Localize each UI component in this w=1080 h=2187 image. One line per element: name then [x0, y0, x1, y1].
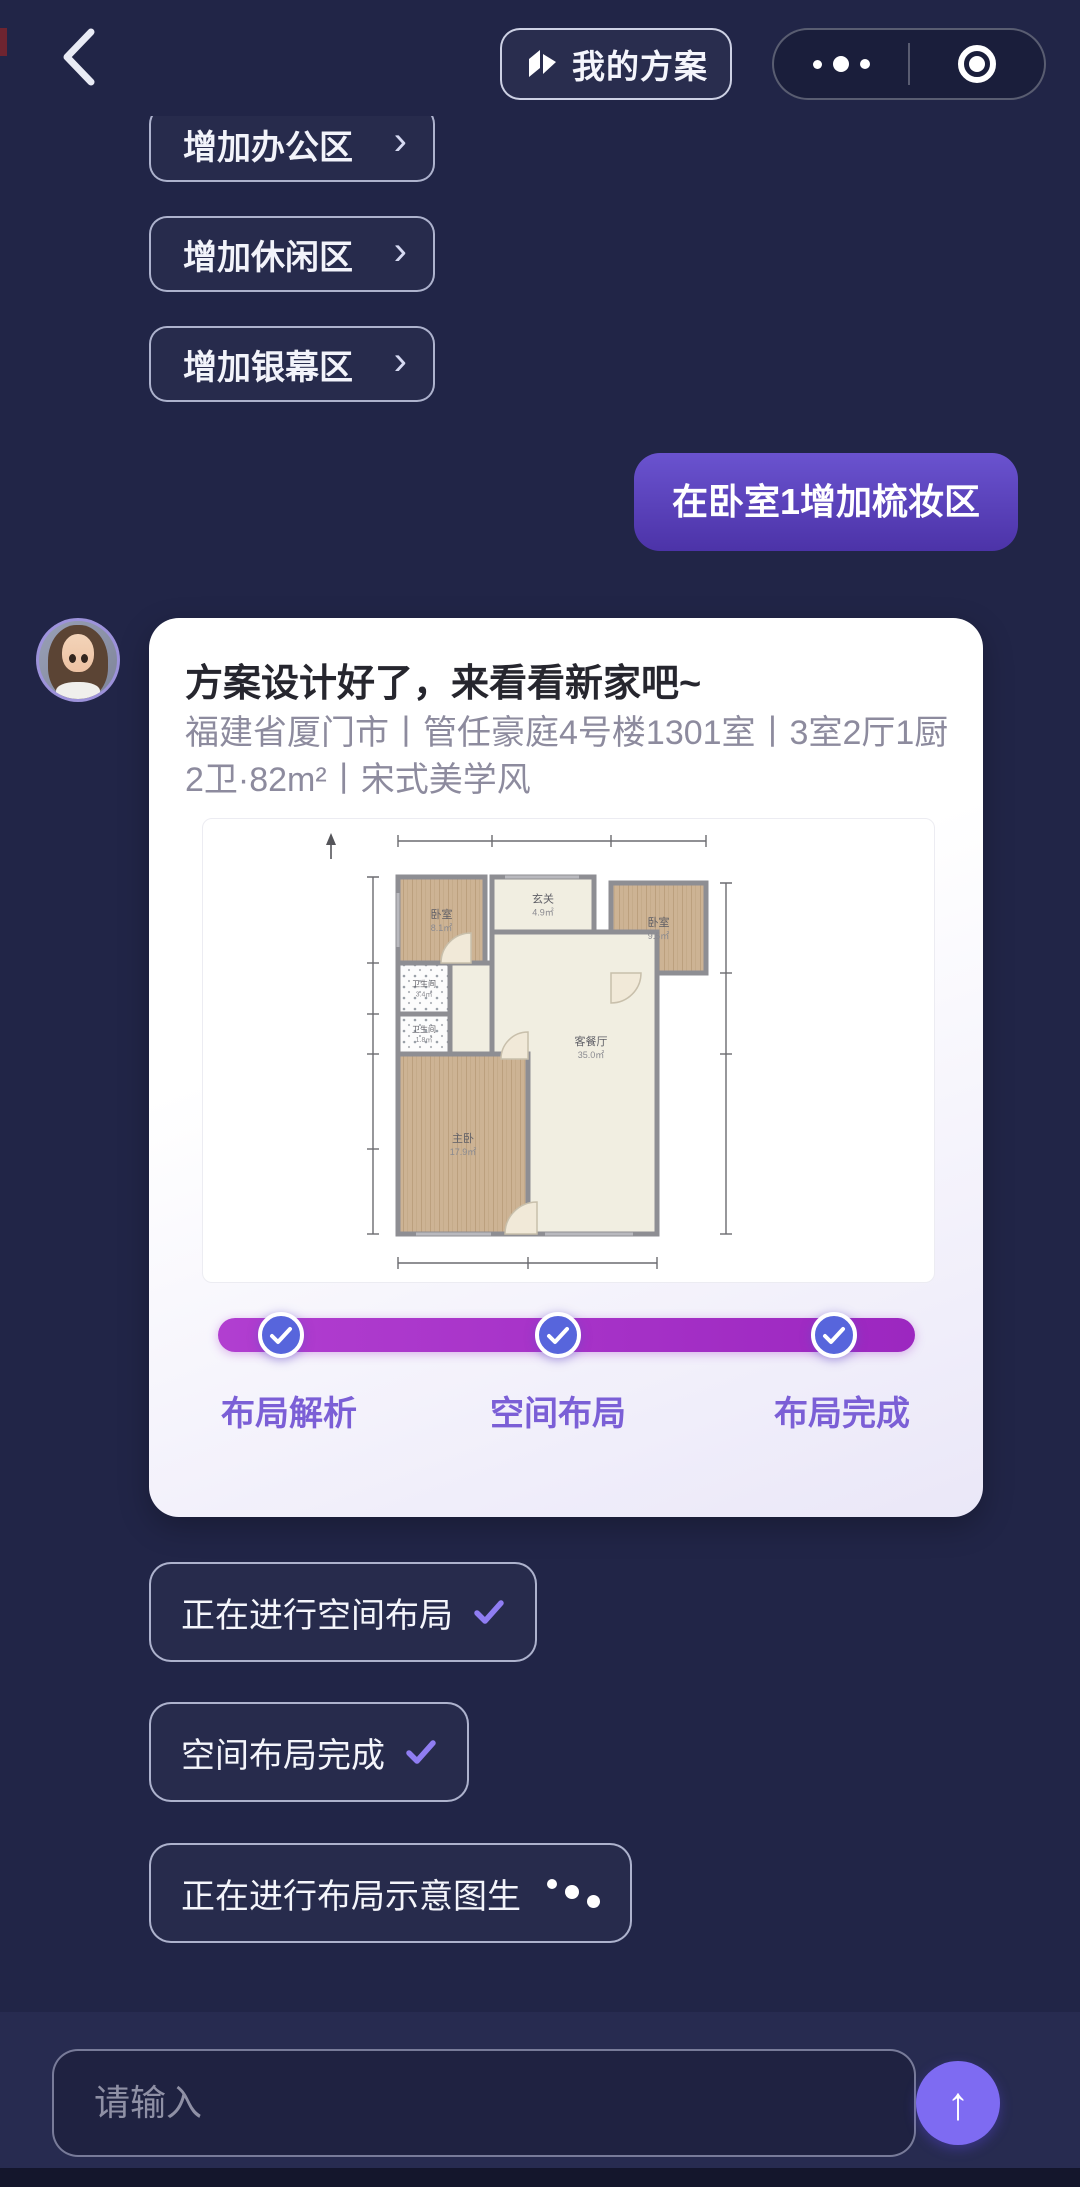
exit-circle-button[interactable] [910, 30, 1044, 98]
status-chip-spatial-layout-progress: 正在进行空间布局 [149, 1562, 537, 1662]
svg-text:玄关: 玄关 [532, 892, 554, 906]
progress-node-layout-complete [811, 1312, 857, 1358]
svg-text:35.0㎡: 35.0㎡ [578, 1050, 605, 1060]
svg-text:8.1㎡: 8.1㎡ [431, 923, 453, 933]
my-plans-label: 我的方案 [572, 40, 708, 88]
progress-bar [218, 1318, 915, 1352]
avatar-face [62, 634, 93, 671]
navbar: 我的方案 [0, 0, 1080, 110]
composer-bar: ↑ [0, 2012, 1080, 2187]
user-message-bubble: 在卧室1增加梳妆区 [634, 453, 1018, 551]
svg-text:卫生间: 卫生间 [412, 979, 436, 989]
room-bathroom-1 [398, 963, 450, 1014]
chevron-right-icon: › [394, 361, 407, 367]
app-screen: 我的方案 增加办公区 › 增加休闲区 › 增加银幕区 › 在卧室1增加梳妆区 [0, 0, 1080, 2187]
svg-text:4.9㎡: 4.9㎡ [532, 908, 554, 918]
progress-node-space-layout [535, 1312, 581, 1358]
plan-icon [524, 46, 560, 82]
suggestion-add-leisure-area[interactable]: 增加休闲区 › [149, 216, 435, 292]
screen-edge-artifact [0, 28, 7, 56]
loading-dots-icon [547, 1873, 600, 1913]
card-title: 方案设计好了，来看看新家吧~ [185, 652, 701, 707]
suggestion-label: 增加办公区 [183, 120, 353, 169]
chevron-right-icon: › [394, 251, 407, 257]
home-indicator-area [0, 2168, 1080, 2187]
svg-text:1.8㎡: 1.8㎡ [416, 1036, 433, 1044]
progress-labels: 布局解析空间布局布局完成 [218, 1386, 915, 1434]
suggestion-add-screen-area[interactable]: 增加银幕区 › [149, 326, 435, 402]
check-icon [473, 1598, 505, 1626]
progress-label-layout-complete: 布局完成 [774, 1386, 910, 1435]
back-icon[interactable] [55, 26, 101, 88]
progress-node-layout-analysis [258, 1312, 304, 1358]
room-corridor [450, 963, 492, 1054]
suggestion-label: 增加银幕区 [183, 340, 353, 389]
plan-card: 方案设计好了，来看看新家吧~ 福建省厦门市丨管任豪庭4号楼1301室丨3室2厅1… [149, 618, 983, 1517]
avatar-body [56, 682, 100, 701]
check-icon [405, 1738, 437, 1766]
chat-input-box [52, 2049, 916, 2157]
status-label: 正在进行空间布局 [181, 1588, 453, 1637]
svg-text:3.4㎡: 3.4㎡ [416, 991, 433, 999]
assistant-avatar [36, 618, 120, 702]
north-arrow [326, 833, 336, 859]
my-plans-button[interactable]: 我的方案 [500, 28, 732, 100]
suggestion-list: 增加办公区 › 增加休闲区 › 增加银幕区 › [149, 116, 469, 416]
avatar-eye [81, 654, 88, 663]
send-button[interactable]: ↑ [916, 2061, 1000, 2145]
status-chip-spatial-layout-done: 空间布局完成 [149, 1702, 469, 1802]
progress-label-layout-analysis: 布局解析 [221, 1386, 357, 1435]
progress-label-space-layout: 空间布局 [490, 1386, 626, 1435]
more-menu-button[interactable] [774, 30, 908, 98]
svg-text:卧室: 卧室 [431, 907, 453, 921]
svg-text:客餐厅: 客餐厅 [575, 1034, 608, 1048]
floorplan-image[interactable]: 卧室8.1㎡玄关4.9㎡卧室9.5㎡客餐厅35.0㎡卫生间3.4㎡卫生间1.8㎡… [202, 818, 935, 1283]
room-bathroom-2 [398, 1014, 450, 1054]
svg-text:卫生间: 卫生间 [412, 1024, 436, 1034]
arrow-up-icon: ↑ [947, 2080, 970, 2126]
svg-text:9.5㎡: 9.5㎡ [648, 931, 670, 941]
svg-text:17.9㎡: 17.9㎡ [450, 1147, 477, 1157]
svg-text:卧室: 卧室 [648, 915, 670, 929]
suggestion-label: 增加休闲区 [183, 230, 353, 279]
chevron-right-icon: › [394, 141, 407, 147]
record-circle-icon [958, 45, 996, 83]
status-chip-diagram-generating: 正在进行布局示意图生 [149, 1843, 632, 1943]
svg-text:主卧: 主卧 [452, 1132, 474, 1145]
card-subtitle: 福建省厦门市丨管任豪庭4号楼1301室丨3室2厅1厨2卫·82m²丨宋式美学风 [185, 710, 951, 804]
status-label: 正在进行布局示意图生 [181, 1869, 521, 1918]
suggestion-add-office-area[interactable]: 增加办公区 › [149, 116, 435, 182]
status-label: 空间布局完成 [181, 1728, 385, 1777]
chat-input[interactable] [54, 2051, 914, 2155]
miniprogram-capsule [772, 28, 1046, 100]
